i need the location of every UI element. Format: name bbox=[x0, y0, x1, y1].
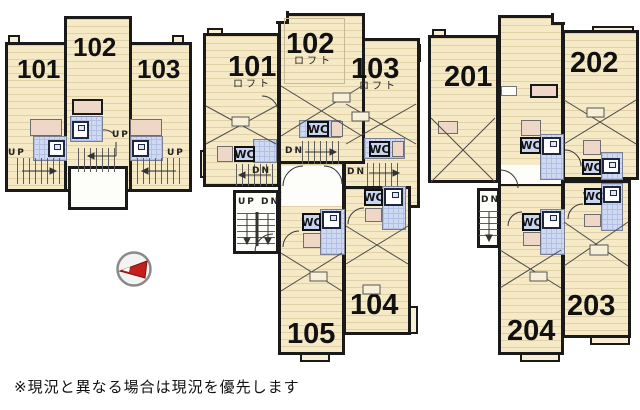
closet bbox=[331, 121, 343, 137]
room-number-203: 203 bbox=[567, 292, 615, 321]
closet bbox=[130, 119, 162, 136]
washer-icon bbox=[602, 158, 620, 174]
up-label: UP bbox=[112, 131, 130, 140]
dn-label: DN bbox=[285, 147, 304, 156]
closet bbox=[438, 121, 458, 134]
room-number-105: 105 bbox=[287, 320, 335, 349]
wc-label: WC bbox=[584, 188, 602, 205]
wc-label: WC bbox=[302, 213, 321, 231]
room-number-102: 102 bbox=[286, 30, 334, 59]
closet bbox=[365, 208, 382, 222]
updn-label: UP DN bbox=[238, 198, 280, 207]
stairs bbox=[237, 213, 275, 246]
wc-label: WC bbox=[522, 213, 541, 231]
north-arrow-icon bbox=[118, 253, 151, 286]
hallway bbox=[282, 166, 342, 206]
disclaimer-text: ※現況と異なる場合は現況を優先します bbox=[14, 378, 300, 396]
wc-label: WC bbox=[369, 141, 390, 157]
bathroom-tile bbox=[253, 139, 277, 163]
washer-icon bbox=[72, 121, 89, 139]
washer-icon bbox=[132, 140, 149, 157]
room-number-204: 204 bbox=[507, 317, 555, 346]
stairs bbox=[302, 141, 339, 164]
dn-label: DN bbox=[252, 167, 271, 176]
closet bbox=[530, 84, 558, 98]
dn-label: DN bbox=[347, 168, 366, 177]
room-number-103: 103 bbox=[351, 55, 399, 84]
counter bbox=[501, 86, 517, 96]
room-number-101: 101 bbox=[228, 53, 276, 82]
wc-label: WC bbox=[582, 159, 601, 175]
up-label: UP bbox=[167, 149, 185, 158]
closet bbox=[30, 119, 62, 136]
stairs bbox=[78, 148, 118, 172]
room-number-201: 201 bbox=[444, 63, 492, 92]
up-label: UP bbox=[8, 149, 26, 158]
closet bbox=[584, 214, 601, 227]
washer-icon bbox=[384, 188, 403, 206]
stairs bbox=[17, 158, 60, 184]
room-number-202: 202 bbox=[570, 49, 618, 78]
closet bbox=[303, 233, 321, 248]
loft-label: ロフト bbox=[294, 57, 333, 67]
washer-icon bbox=[322, 211, 341, 229]
closet bbox=[583, 140, 601, 155]
dn-label: DN bbox=[481, 196, 500, 205]
wall-notch bbox=[551, 13, 565, 25]
stairs bbox=[479, 211, 498, 241]
stairs bbox=[137, 158, 180, 184]
stairs bbox=[367, 163, 403, 186]
wc-label: WC bbox=[234, 146, 255, 162]
unit-201 bbox=[428, 35, 499, 183]
closet bbox=[72, 99, 103, 115]
loft-label: ロフト bbox=[233, 80, 272, 90]
room-number-103: 103 bbox=[137, 56, 180, 82]
entrance-porch bbox=[68, 166, 128, 210]
washer-icon bbox=[603, 186, 621, 203]
closet bbox=[523, 232, 541, 246]
washer-icon bbox=[48, 140, 65, 157]
room-number-104: 104 bbox=[350, 291, 398, 320]
washer-icon bbox=[542, 211, 561, 229]
closet bbox=[217, 146, 233, 162]
closet bbox=[521, 120, 541, 136]
wc-label: WC bbox=[520, 137, 541, 154]
wc-label: WC bbox=[364, 189, 383, 206]
washer-icon bbox=[542, 137, 561, 155]
closet bbox=[392, 141, 404, 157]
loft-label: ロフト bbox=[359, 82, 398, 92]
floor-plan-canvas: UP UP UP 101 102 103 WC DN WC DN WC DN W… bbox=[0, 0, 640, 410]
wc-label: WC bbox=[307, 121, 329, 137]
room-number-101: 101 bbox=[17, 56, 60, 82]
room-number-102: 102 bbox=[73, 34, 116, 60]
